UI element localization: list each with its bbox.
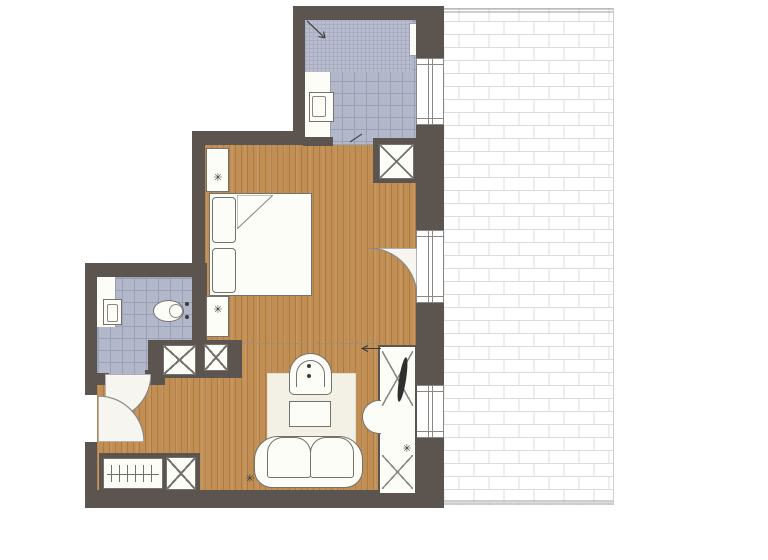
direction-arrow (360, 344, 382, 353)
pillow-bottom (212, 248, 236, 293)
wall-bathroom-left (293, 6, 305, 145)
bedroom-terrace-door (368, 248, 417, 297)
wall-right-upper (416, 125, 444, 230)
wall-bath-bottom-stub (303, 137, 333, 146)
wall-wc-left (85, 263, 97, 395)
armchair-dot (307, 364, 311, 368)
wall-wc-top (85, 263, 207, 277)
entry-door (98, 396, 144, 442)
coffee-table (289, 401, 331, 427)
sofa-cushion (267, 437, 311, 478)
bedroom-terrace-door-window (416, 230, 444, 303)
wardrobe-hangers (111, 465, 155, 482)
wardrobe (103, 458, 163, 489)
shaft-box-small (204, 344, 228, 371)
shaft-box-wc (163, 345, 196, 375)
bathroom-window (416, 58, 444, 125)
blanket-fold (237, 195, 273, 229)
plant-icon: ✳ (243, 472, 257, 486)
living-window (416, 385, 444, 438)
plant-icon: ✳ (400, 442, 414, 456)
shower-drain-arrow (305, 19, 329, 41)
washbasin-bowl (312, 96, 326, 117)
zone-dashed-line (242, 343, 378, 344)
wall-bedroom-top (192, 131, 305, 145)
terrace-paving (444, 8, 614, 505)
bathroom-washbasin (309, 92, 334, 122)
floor-plan: ✳ ✳ ✳ ✳ (0, 0, 768, 560)
plant-icon: ✳ (211, 303, 225, 317)
pillow-top (212, 197, 236, 243)
cabinet-cross-bottom (382, 455, 413, 489)
toilet-fitting-dot (185, 315, 189, 319)
shaft-box-bathroom (379, 144, 414, 179)
shaft-box-entry (166, 457, 196, 490)
armchair-dot (307, 374, 311, 378)
wall-top (293, 6, 418, 20)
bathroom-threshold-mark (348, 131, 364, 144)
wc-washbasin (103, 299, 122, 325)
sofa-cushion (310, 437, 354, 478)
plant-icon: ✳ (211, 171, 225, 185)
wall-top-right-corner (416, 6, 444, 58)
wall-right-middle (416, 303, 444, 385)
toilet-fitting-dot (185, 302, 189, 306)
nightstand-top (206, 148, 229, 192)
toilet-flush (169, 304, 183, 318)
wc-washbasin-bowl (107, 304, 118, 322)
